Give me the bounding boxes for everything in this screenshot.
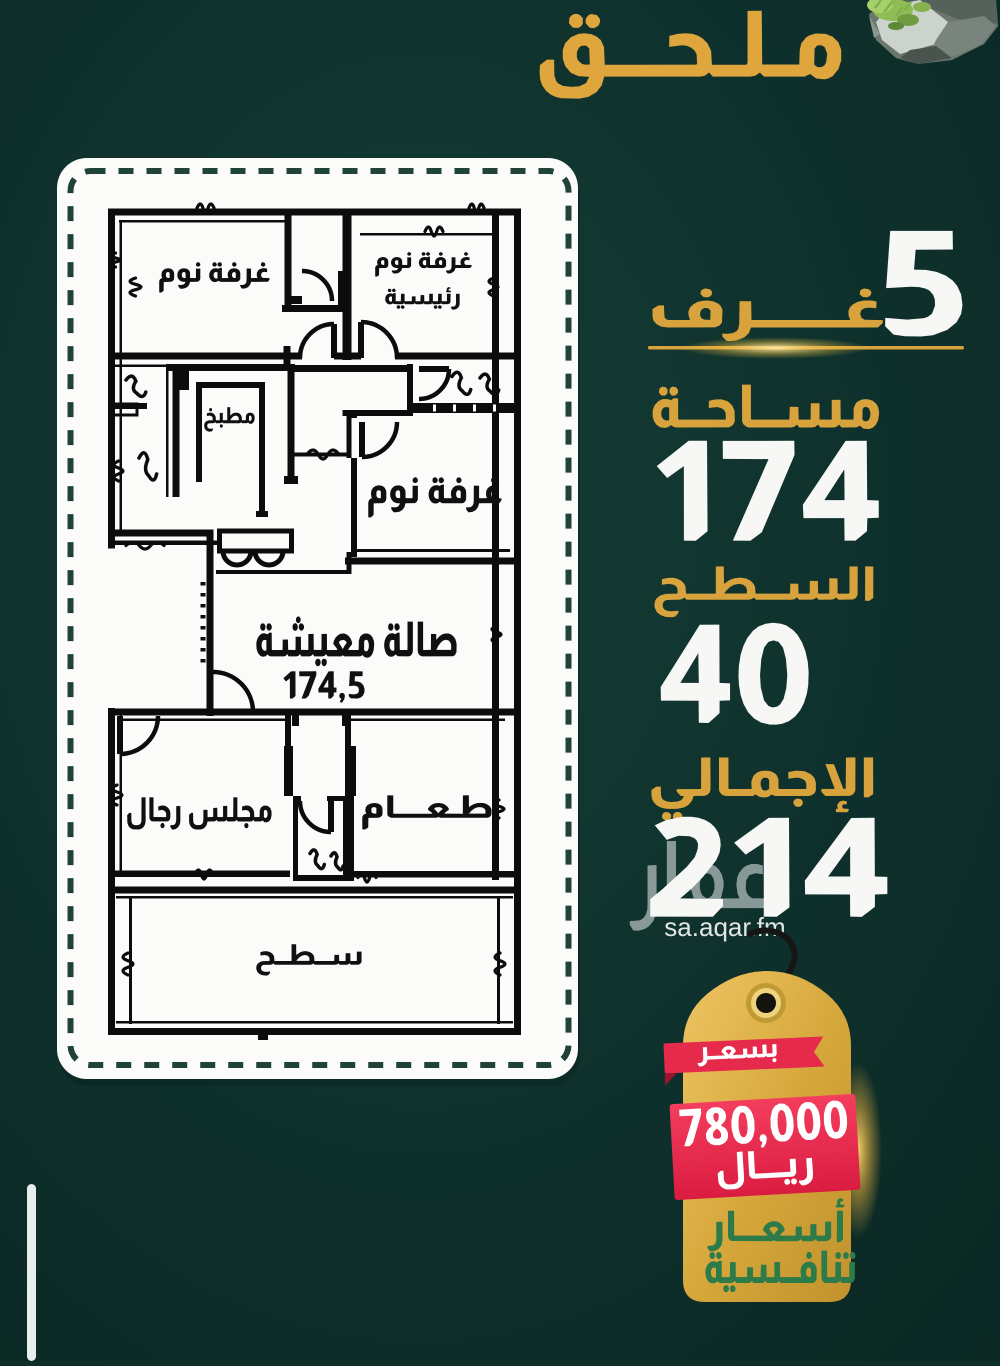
svg-text:sa.aqar.fm: sa.aqar.fm [664,912,785,942]
